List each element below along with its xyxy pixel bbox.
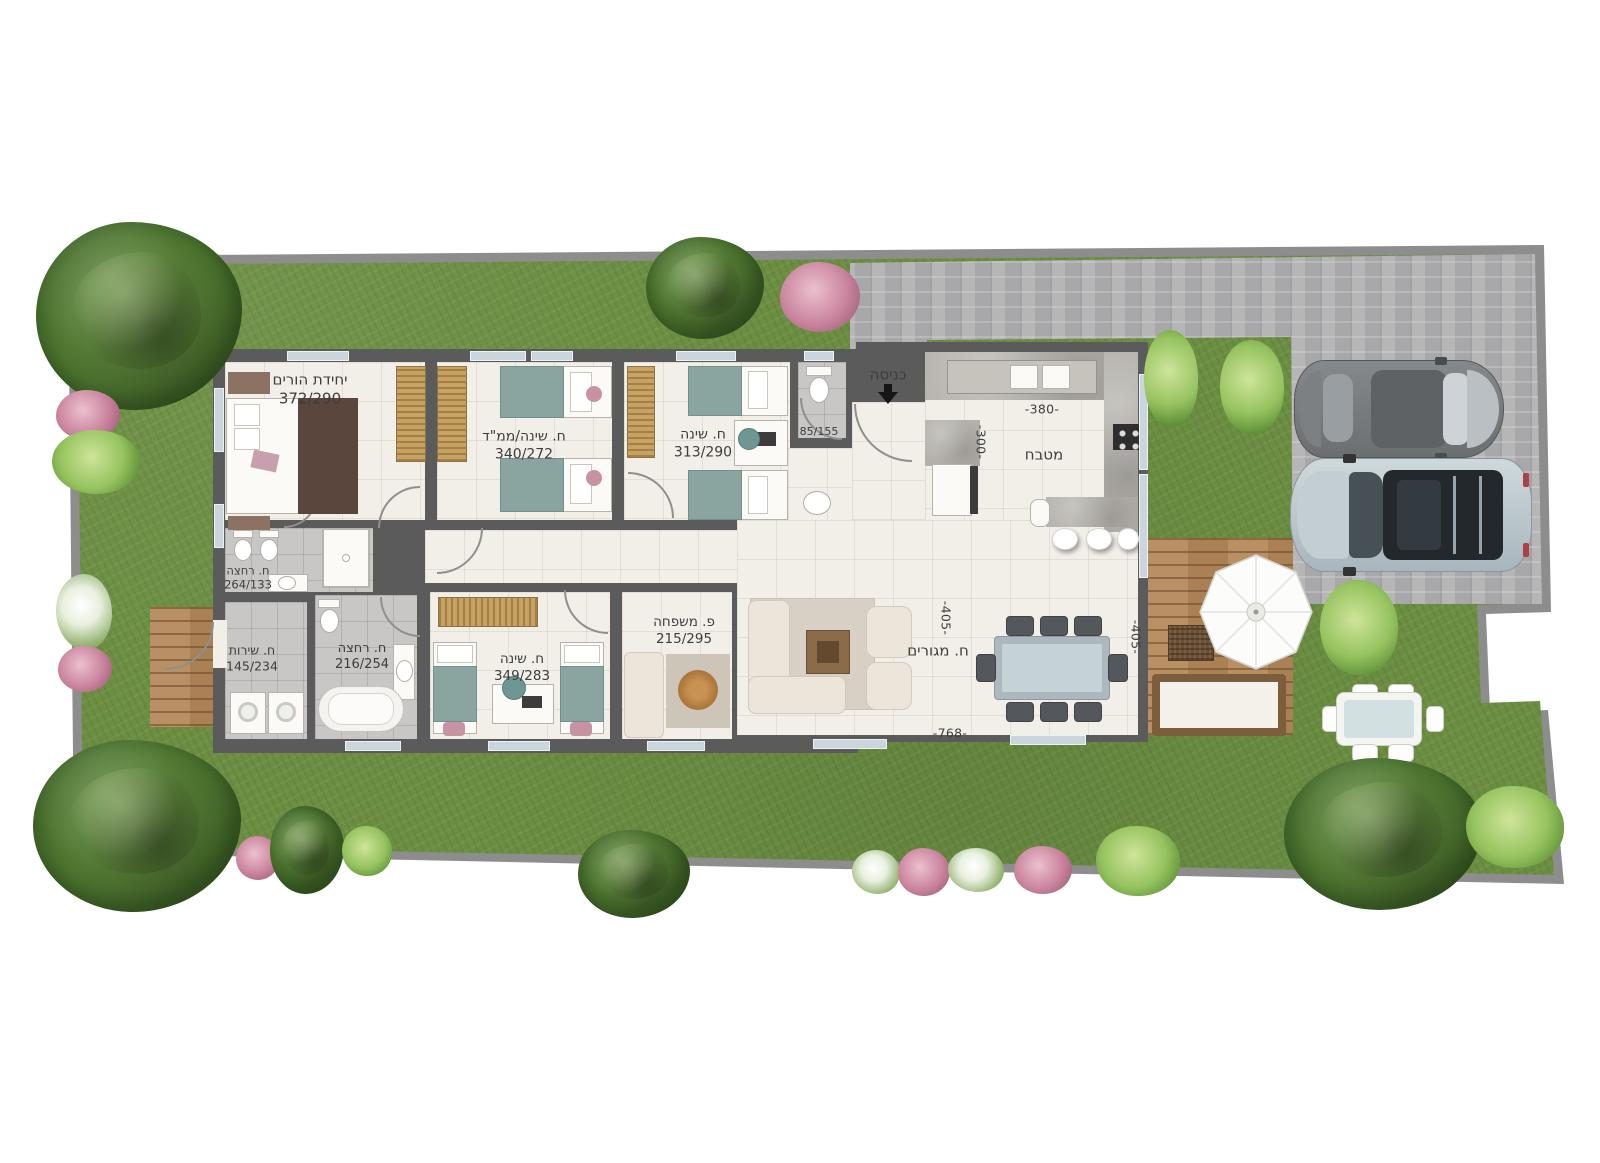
toilet [320,609,339,633]
dining-chair [1040,616,1068,636]
toilet-tank [259,530,279,538]
dining-chair [1108,654,1128,682]
patio-umbrella [1197,553,1315,671]
chair [586,386,602,402]
pillow [234,404,260,426]
car-mirror [1435,357,1447,365]
label-safe-room: ח. שינה/ממ"ד 340/272 [482,429,566,464]
flower-bush [780,262,860,332]
car-mirror [1343,454,1356,463]
label-toilet: 85/155 [800,425,839,439]
window [647,741,705,751]
room-size: 313/290 [674,444,732,462]
room-name: ח. רחצה [226,564,269,578]
bathtub-basin [328,693,394,725]
fern [578,830,690,918]
outdoor-table-glass [1344,700,1414,738]
window [214,388,224,452]
label-bathroom2: ח. רחצה 216/254 [335,641,389,674]
sink [396,660,413,682]
patio-door [1139,474,1148,578]
label-entrance: כניסה [870,366,907,385]
room-name: ח. שינה [500,651,544,667]
bar-stool [1086,528,1112,550]
room-name: ח. רחצה [338,641,387,656]
refrigerator-edge [970,466,978,514]
tree [1284,758,1482,910]
bed-blanket [688,470,742,520]
chair [586,470,602,486]
label-utility: ח. שירות 145/234 [226,642,278,673]
palm-plant [1320,580,1398,675]
kitchen-sink-right [1042,365,1070,389]
pillow [748,371,768,409]
car-roof [1383,470,1503,560]
bed-blanket [560,666,604,722]
kitchen-sink-left [1010,365,1038,389]
car-roof-rail [1453,476,1456,554]
dining-chair [1074,702,1102,722]
label-parents-unit: יחידת הורים 372/290 [273,370,348,408]
dining-chair [1006,616,1034,636]
bush [1220,340,1284,434]
flower-bush [898,848,950,896]
pillow [748,476,768,514]
dim-kitchen-width: -380- [1025,402,1059,417]
car-rear-glass [1323,374,1353,442]
room-name: ח. שינה [680,427,726,443]
coffee-table-tray [817,641,839,663]
window [1010,735,1086,745]
refrigerator [932,464,972,516]
car-tail-light [1523,543,1529,557]
room-name: פ. משפחה [653,614,715,630]
window [214,504,224,548]
corner-sofa [748,676,846,714]
outdoor-chair [1426,706,1444,732]
armchair [866,662,912,710]
bidet [260,539,278,561]
outdoor-sofa [1152,674,1286,736]
flower-bush [1014,846,1072,894]
dining-chair [1040,702,1068,722]
fern [270,806,344,894]
nightstand [228,516,270,530]
room-size: 145/234 [226,658,278,674]
dryer-door [276,702,296,722]
room-size: 372/290 [273,389,348,408]
bush [1096,826,1180,896]
sink [278,576,296,590]
wardrobe [438,597,538,627]
toilet [234,539,252,561]
flower-bush [58,646,112,692]
pillow [437,645,473,663]
window [287,351,349,361]
tree [33,740,241,912]
fern [1466,786,1564,868]
bed-blanket [500,366,564,418]
room-name: ח. מגורים [907,642,969,660]
entrance-arrow-head [878,392,898,404]
room-size: 216/254 [335,657,389,673]
label-kitchen: מטבח [1025,446,1063,465]
window [488,741,550,751]
window [470,351,526,361]
car-mirror [1343,567,1356,576]
room-size: 340/272 [482,446,566,464]
desk-chair [738,428,760,450]
dining-chair [976,654,996,682]
flower-bush [56,574,112,650]
car-roof-rail [1479,476,1482,554]
toilet-tank [318,599,340,608]
car-sedan [1294,360,1504,458]
room-size: 264/133 [224,578,272,592]
label-living: ח. מגורים [907,642,969,661]
dim-living-width: -768- [933,726,967,741]
car-hood [1467,370,1499,448]
car-sunroof [1397,480,1441,550]
room-size: 85/155 [800,425,839,439]
car-windshield [1443,373,1469,445]
nightstand [228,372,270,394]
pillow [570,722,592,736]
pillow [443,722,465,736]
window [531,351,573,361]
car-roof [1371,370,1447,448]
label-bedroom2: ח. שינה 313/290 [674,427,732,462]
fern [52,430,140,494]
bed-blanket [500,458,564,512]
room-name: ח. שינה/ממ"ד [482,429,566,445]
deck-door-opening [213,620,227,668]
round-jute-rug [678,670,718,710]
bed-blanket [688,366,742,416]
bush [342,826,392,876]
car-windshield [1349,472,1383,558]
label-parents-bath: ח. רחצה 264/133 [224,564,272,593]
room-name: ח. שירות [229,642,275,657]
dim-living-depth-right: -405- [1129,620,1144,654]
pillow [564,645,600,663]
cooktop-icon [1113,424,1139,450]
car-trunk [1299,371,1321,447]
window [676,351,736,361]
room-name: יחידת הורים [273,370,348,388]
wardrobe [627,366,655,458]
bed-blanket [298,398,358,514]
family-sofa [624,652,664,738]
bar-stool [1117,528,1139,550]
dining-table-glass [1002,644,1102,692]
toilet-tank [806,366,832,376]
room-name: כניסה [870,366,907,384]
kitchen-counter-zone-left [925,420,980,466]
label-bedroom3: ח. שינה 349/283 [494,651,550,685]
flower-bush [852,850,900,894]
room-size: 349/283 [494,668,550,685]
label-family: פ. משפחה 215/295 [653,614,715,648]
floor-plan: יחידת הורים 372/290 ח. שינה/ממ"ד 340/272… [0,0,1600,1163]
car-suv [1290,458,1532,572]
toilet [809,377,829,403]
window [345,741,401,751]
island-end-seat [1030,499,1050,527]
car-hood [1297,471,1349,559]
window [813,739,887,749]
pillow [234,428,260,450]
dining-chair [1074,616,1102,636]
room-size: 215/295 [653,631,715,648]
room-name: מטבח [1025,446,1063,464]
dining-chair [1006,702,1034,722]
washer-door [238,702,258,722]
toilet-tank [233,530,253,538]
car-tail-light [1523,473,1529,487]
dim-living-depth-left: -405- [939,601,954,635]
armchair [866,606,912,658]
bush [1144,330,1198,428]
bar-stool [1052,528,1078,550]
dim-entry-depth: -300- [974,425,989,459]
hand-basin [803,491,831,515]
wardrobe [396,366,426,462]
flower-bush [948,848,1004,892]
kitchen-island [1046,497,1138,527]
bed-blanket [433,666,477,722]
shower-drain [342,554,350,562]
window [804,351,834,361]
wardrobe [437,366,467,462]
laptop-icon [522,696,542,708]
